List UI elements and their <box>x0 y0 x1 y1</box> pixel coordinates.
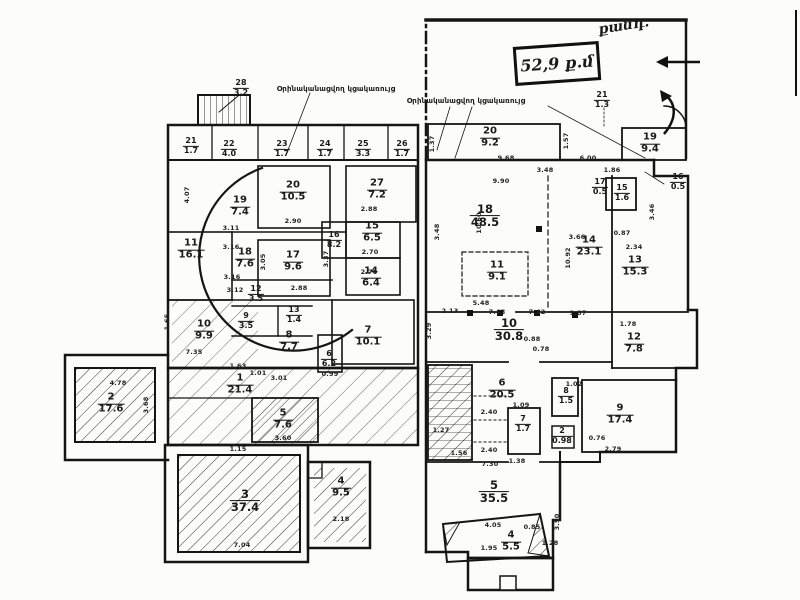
stamp-text: 52,9 ք.մ <box>520 51 595 75</box>
floorplan-drawing <box>0 0 800 600</box>
handwritten-area-stamp: 52,9 ք.մ <box>513 41 602 86</box>
scanned-floorplan: 283.2211.7224.0231.7241.7253.3261.7277.2… <box>0 0 800 600</box>
left-arrow-icon <box>656 56 700 68</box>
plan-right-walls <box>426 20 697 590</box>
plan-left-walls <box>65 93 418 562</box>
